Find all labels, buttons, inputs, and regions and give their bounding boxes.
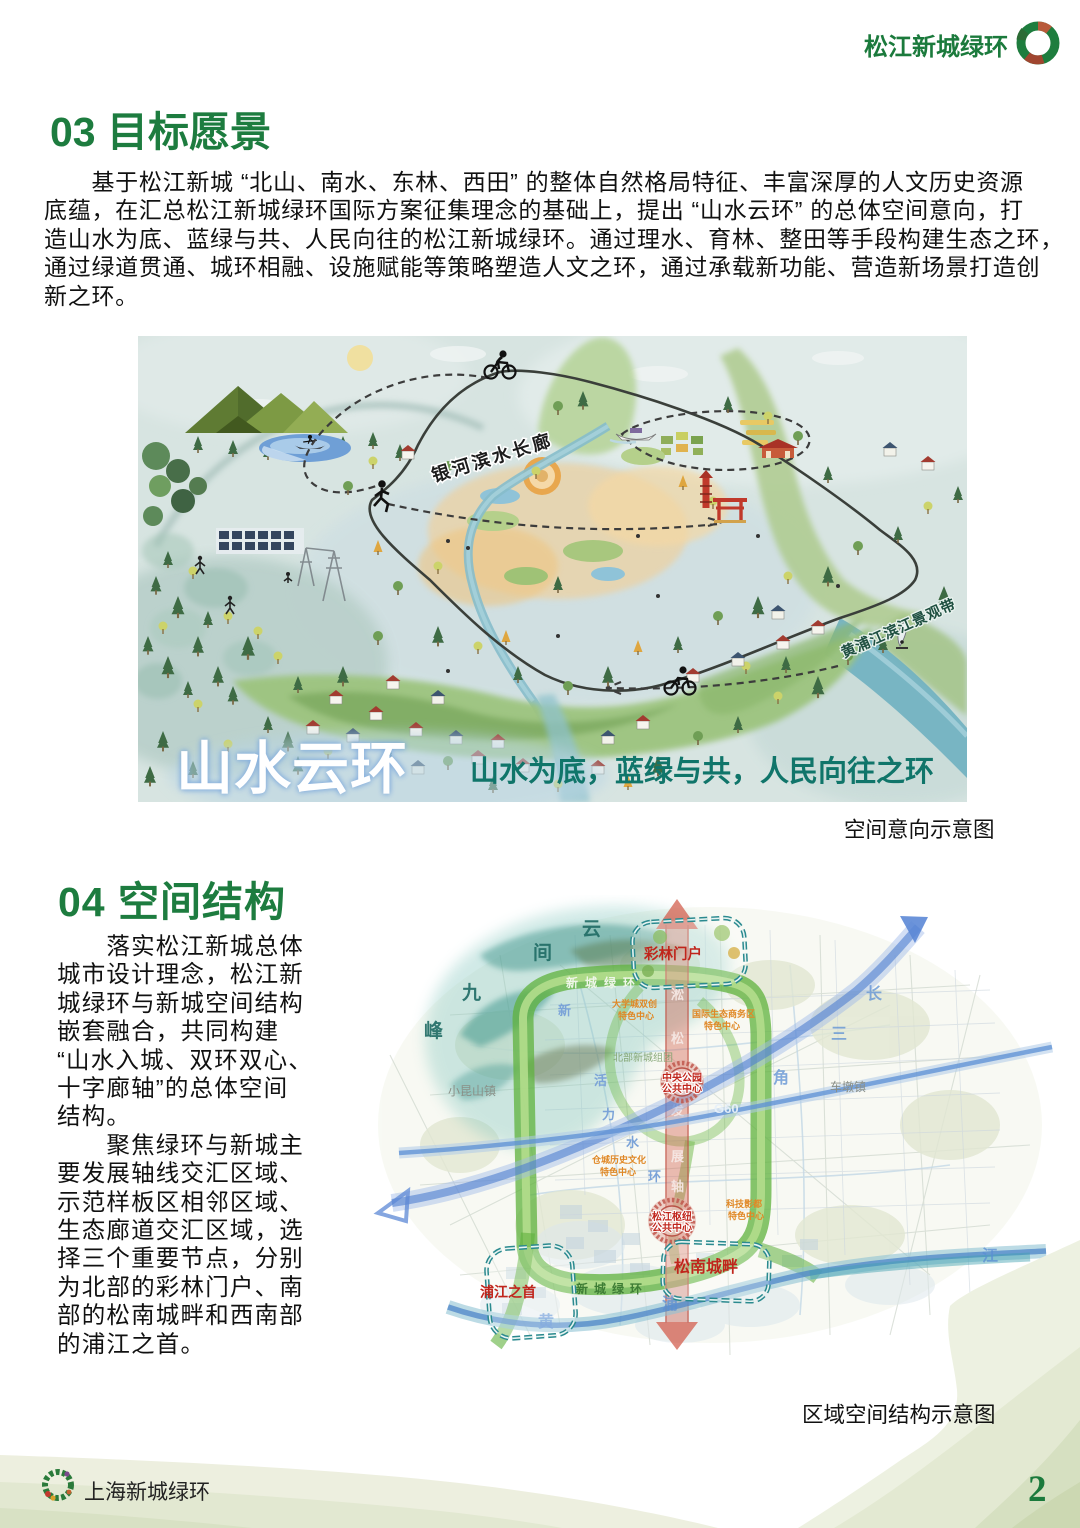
svg-text:环: 环 — [648, 1169, 661, 1184]
svg-text:山水云环: 山水云环 — [176, 737, 408, 801]
svg-text:展: 展 — [671, 1149, 685, 1164]
svg-text:山水为底，蓝绿与共，人民向往之环: 山水为底，蓝绿与共，人民向往之环 — [470, 754, 934, 788]
svg-text:小昆山镇: 小昆山镇 — [448, 1084, 496, 1098]
svg-text:松: 松 — [671, 1031, 684, 1046]
svg-text:力: 力 — [602, 1107, 615, 1122]
svg-text:活: 活 — [594, 1073, 607, 1088]
svg-text:水: 水 — [626, 1135, 640, 1150]
svg-text:北部新城组团: 北部新城组团 — [613, 1051, 673, 1064]
svg-text:角: 角 — [773, 1068, 789, 1087]
svg-text:轴: 轴 — [671, 1179, 684, 1194]
svg-text:间: 间 — [533, 942, 552, 964]
svg-text:国际生态商务区: 国际生态商务区 — [692, 1008, 755, 1019]
svg-text:彩林门户: 彩林门户 — [643, 945, 702, 963]
svg-text:云: 云 — [582, 919, 601, 940]
svg-text:车墩镇: 车墩镇 — [830, 1079, 866, 1094]
svg-text:峰: 峰 — [424, 1019, 444, 1042]
svg-text:科技影都: 科技影都 — [726, 1198, 762, 1209]
svg-text:九: 九 — [461, 982, 481, 1004]
svg-text:公共中心: 公共中心 — [662, 1082, 702, 1095]
svg-text:仓城历史文化: 仓城历史文化 — [591, 1154, 646, 1165]
svg-text:淞: 淞 — [671, 987, 684, 1002]
svg-text:三: 三 — [831, 1026, 847, 1043]
svg-text:长: 长 — [866, 984, 883, 1003]
svg-text:新城绿环: 新城绿环 — [566, 975, 642, 990]
svg-text:特色中心: 特色中心 — [600, 1166, 636, 1177]
svg-text:大学城双创: 大学城双创 — [612, 998, 657, 1009]
svg-text:特色中心: 特色中心 — [704, 1020, 740, 1031]
svg-text:中央公园: 中央公园 — [662, 1071, 702, 1084]
svg-text:特色中心: 特色中心 — [618, 1010, 654, 1021]
svg-text:新: 新 — [558, 1003, 571, 1018]
svg-text:G60: G60 — [714, 1101, 739, 1116]
